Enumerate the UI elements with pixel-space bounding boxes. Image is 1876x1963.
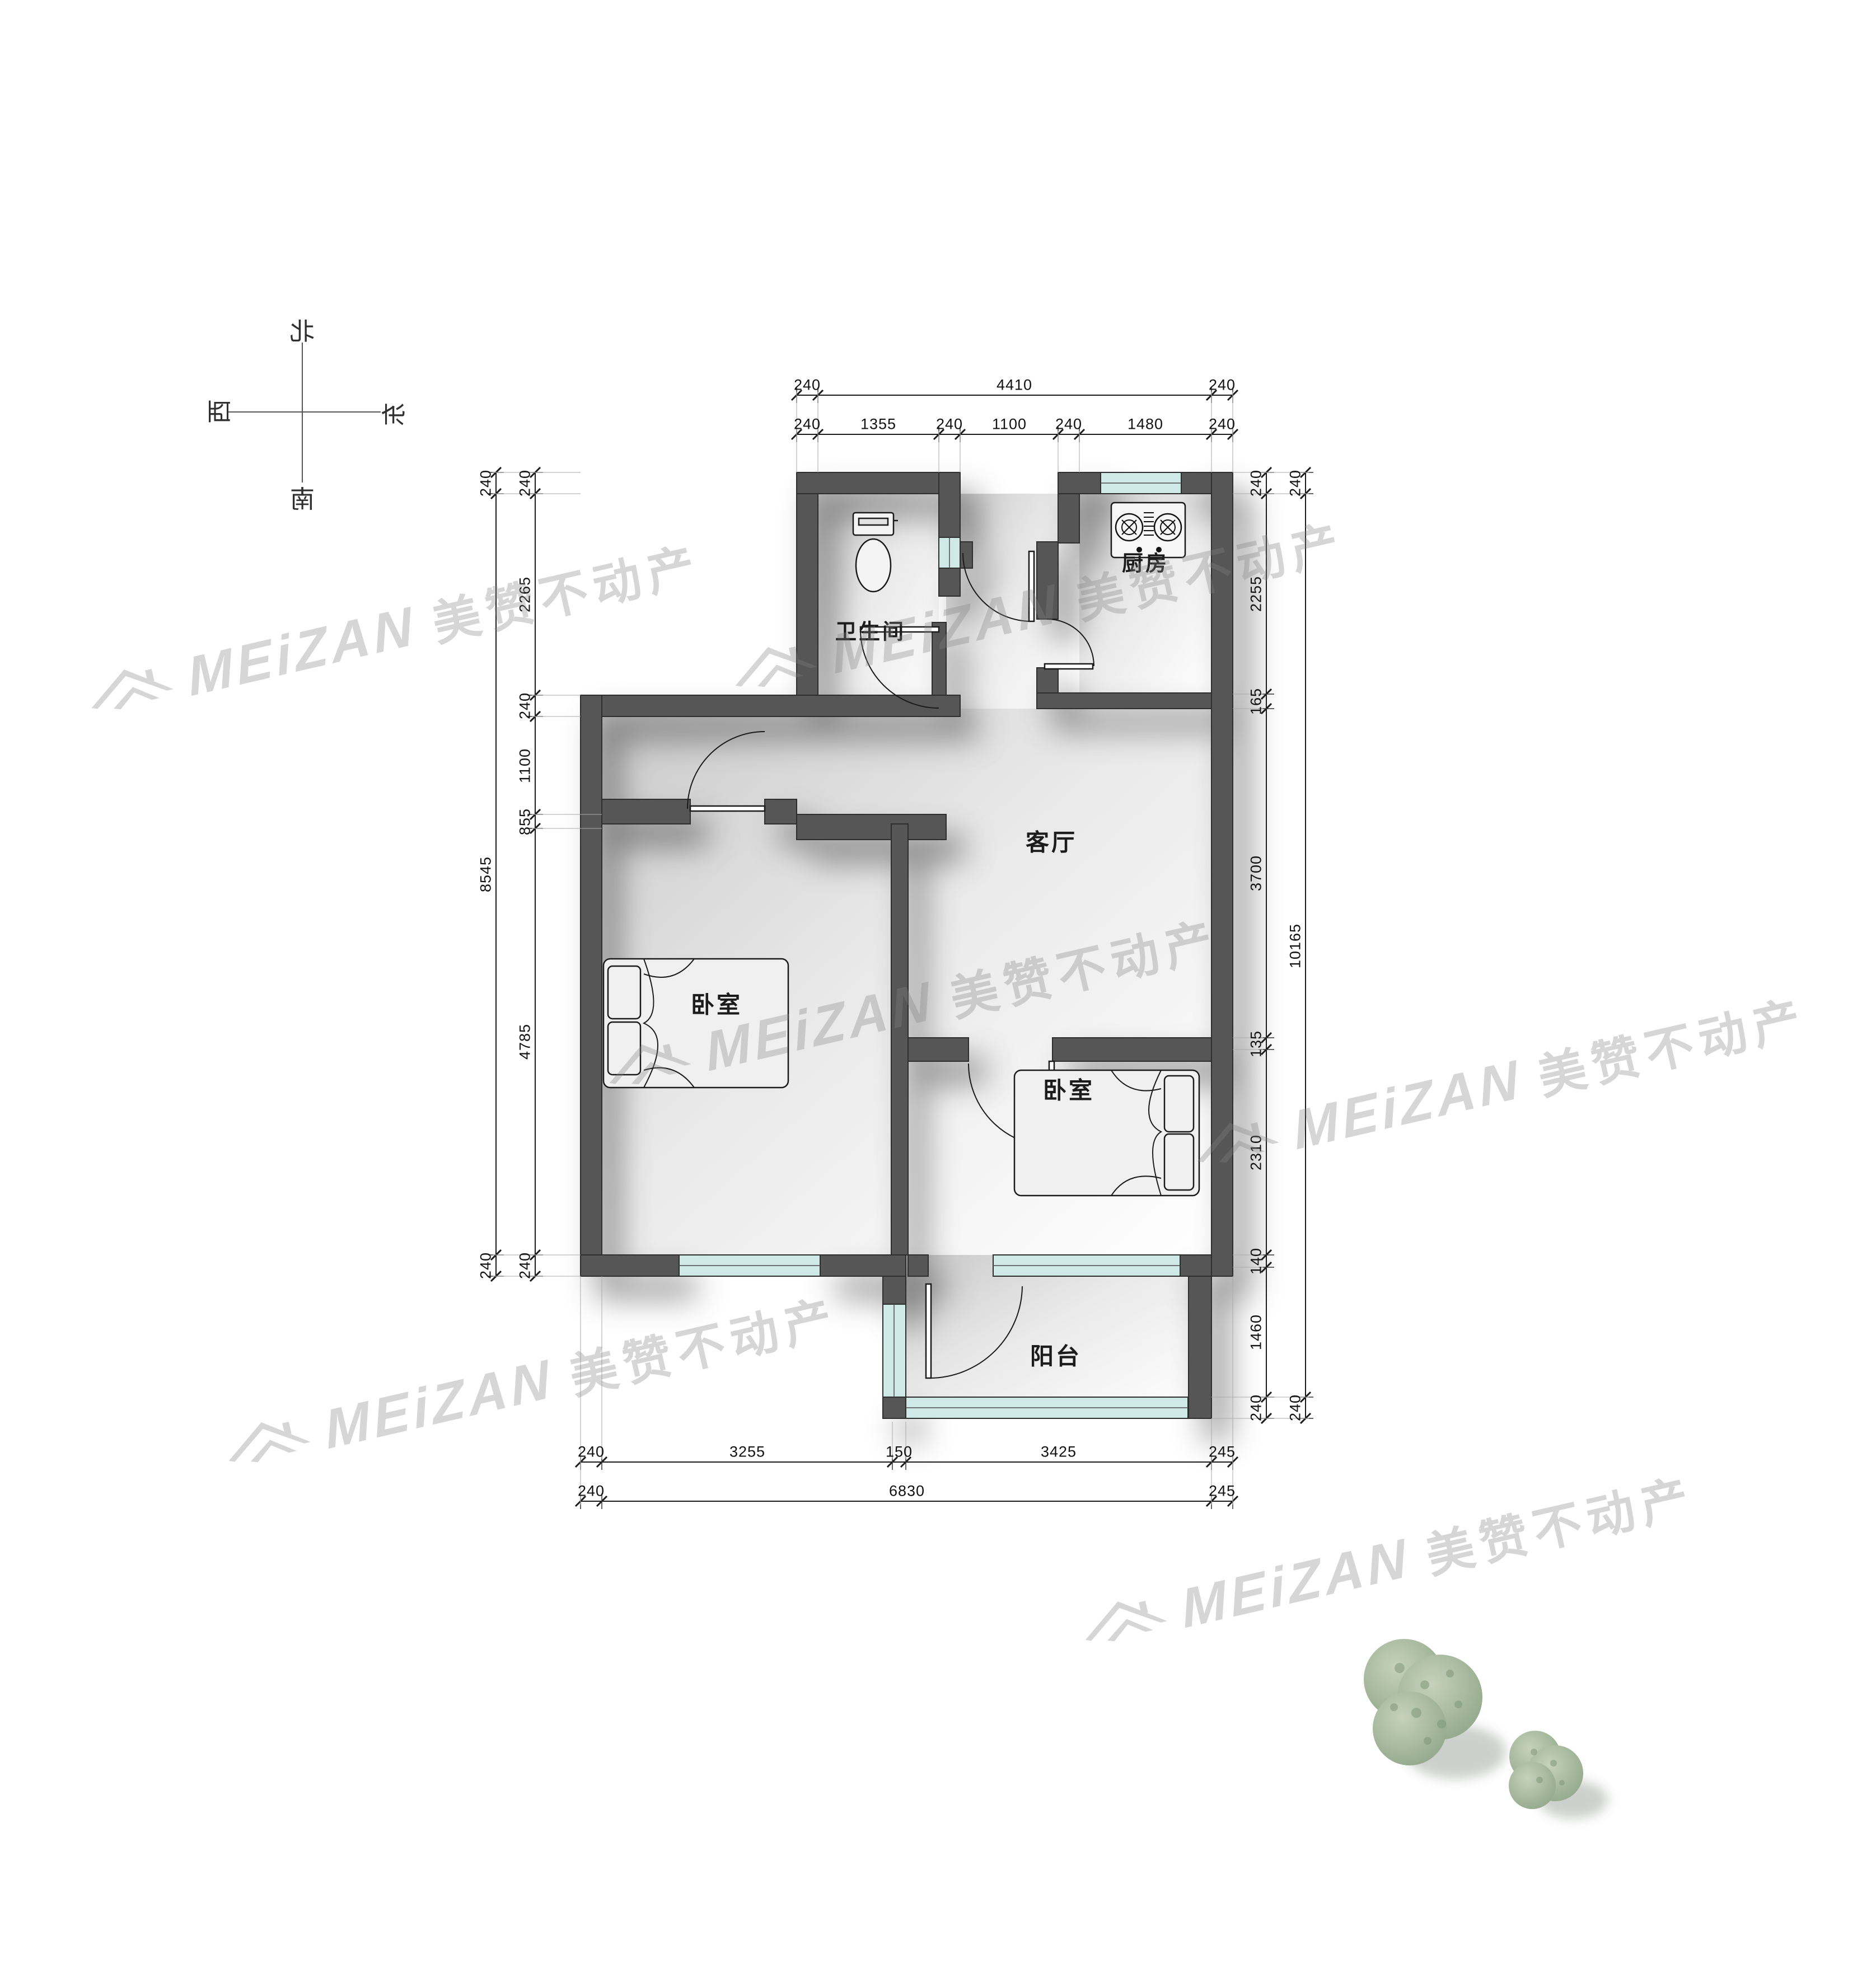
dim-label: 240: [1209, 377, 1236, 394]
dim-label: 245: [1209, 1483, 1236, 1500]
tree-icon: [1509, 1731, 1608, 1819]
dim-label: 240: [1248, 1394, 1265, 1421]
dim-label: 240: [1248, 470, 1265, 496]
dim-label: 1100: [992, 416, 1027, 433]
dim-label: 245: [1209, 1444, 1236, 1461]
dim-label: 6830: [889, 1483, 925, 1500]
dim-label: 1355: [860, 416, 896, 433]
dim-label: 2310: [1248, 1135, 1265, 1170]
floorplan-canvas: 北 南 西 东 卫生间 厨房 客厅 卧室 卧室 阳台 240 4410 240 …: [0, 0, 1876, 1963]
dim-label: 1480: [1128, 416, 1163, 433]
kitchen-door-leaf: [1045, 664, 1093, 669]
dim-label: 240: [936, 416, 963, 433]
dim-label: 240: [478, 1252, 495, 1279]
dim-label: 3255: [729, 1444, 765, 1461]
dim-label: 240: [1287, 470, 1304, 496]
compass-west-label: 西: [199, 399, 235, 424]
dim-label: 10165: [1287, 924, 1304, 968]
bed-left-icon: [603, 959, 788, 1088]
dim-label: 4785: [517, 1024, 534, 1060]
compass-icon: [227, 343, 381, 482]
room-label-living: 客厅: [1026, 824, 1077, 858]
dim-label: 240: [578, 1483, 605, 1500]
dim-label: 240: [1287, 1394, 1304, 1421]
compass-south-label: 南: [290, 479, 315, 515]
dim-label: 150: [886, 1444, 913, 1461]
bedroom-left-door-leaf: [690, 806, 765, 811]
dim-label: 1100: [517, 748, 534, 783]
dim-label: 240: [794, 416, 821, 433]
entry-door-leaf: [1029, 551, 1034, 621]
room-label-bathroom: 卫生间: [835, 615, 906, 645]
balcony-door-leaf: [926, 1284, 931, 1378]
dim-label: 8545: [478, 856, 495, 892]
dim-label: 240: [478, 470, 495, 496]
dim-label: 3700: [1248, 855, 1265, 891]
dim-label: 165: [1248, 688, 1265, 715]
tree-icon: [1364, 1639, 1506, 1779]
dim-label: 140: [1248, 1248, 1265, 1275]
compass-north-label: 北: [290, 311, 315, 347]
dim-label: 240: [578, 1444, 605, 1461]
dim-label: 855: [517, 808, 534, 835]
compass-east-label: 东: [374, 402, 410, 427]
dim-label: 240: [794, 377, 821, 394]
dim-label: 2265: [517, 577, 534, 612]
dim-label: 2255: [1248, 576, 1265, 612]
room-label-balcony: 阳台: [1030, 1338, 1082, 1372]
dim-label: 240: [517, 692, 534, 719]
dim-label: 240: [1209, 416, 1236, 433]
dim-label: 4410: [997, 377, 1032, 394]
dim-label: 240: [1055, 416, 1082, 433]
room-label-bedroom-right: 卧室: [1043, 1072, 1094, 1106]
room-label-bedroom-left: 卧室: [691, 986, 742, 1020]
dim-label: 240: [517, 470, 534, 496]
dim-label: 3425: [1041, 1444, 1077, 1461]
bed-right-icon: [1014, 1070, 1199, 1196]
floorplan-drawing: [0, 0, 1876, 1963]
dim-label: 240: [517, 1252, 534, 1279]
dim-label: 135: [1248, 1030, 1265, 1057]
dim-label: 1460: [1248, 1314, 1265, 1350]
room-label-kitchen: 厨房: [1122, 546, 1169, 577]
